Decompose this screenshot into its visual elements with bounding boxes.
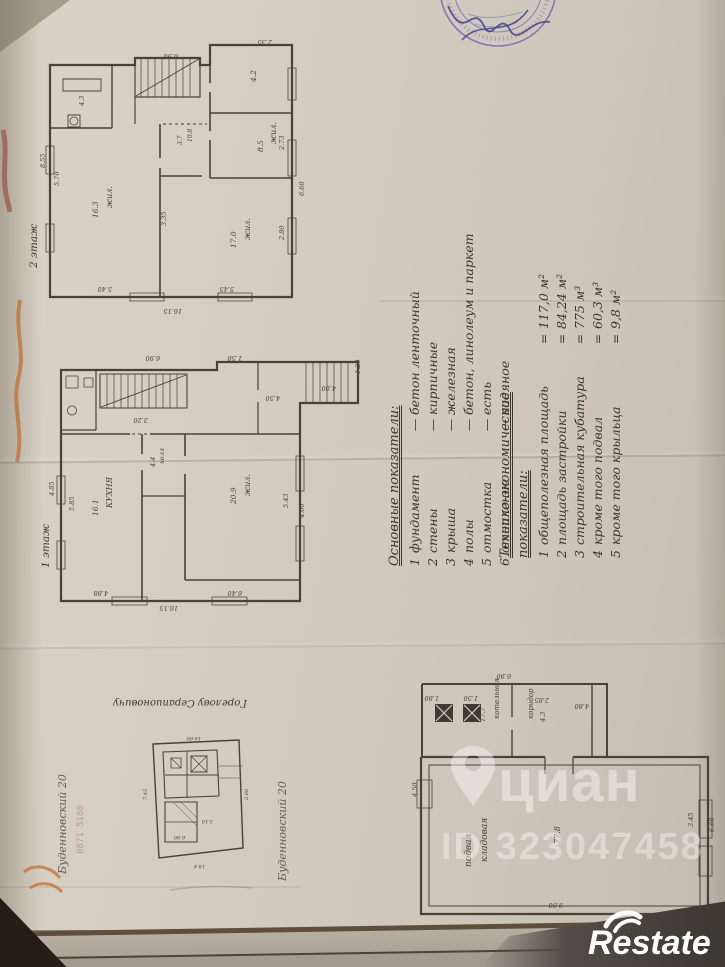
cian-listing-id: ID 323047458 <box>441 826 704 869</box>
location-pin-icon <box>450 746 496 806</box>
orange-scribble <box>24 867 62 892</box>
cian-wordmark: циан <box>498 748 641 815</box>
restate-logo: Restate <box>572 906 725 964</box>
crayon-marks <box>0 0 725 967</box>
restate-logo-text: Restate <box>588 924 711 962</box>
orange-crayon-mark <box>16 300 21 462</box>
faint-pencil-note <box>170 886 252 890</box>
photo-of-floorplan-document: жил.16.3жил.17.0жил.8.54.24.310.83.76.90… <box>0 0 725 967</box>
red-edge-mark <box>3 130 10 212</box>
